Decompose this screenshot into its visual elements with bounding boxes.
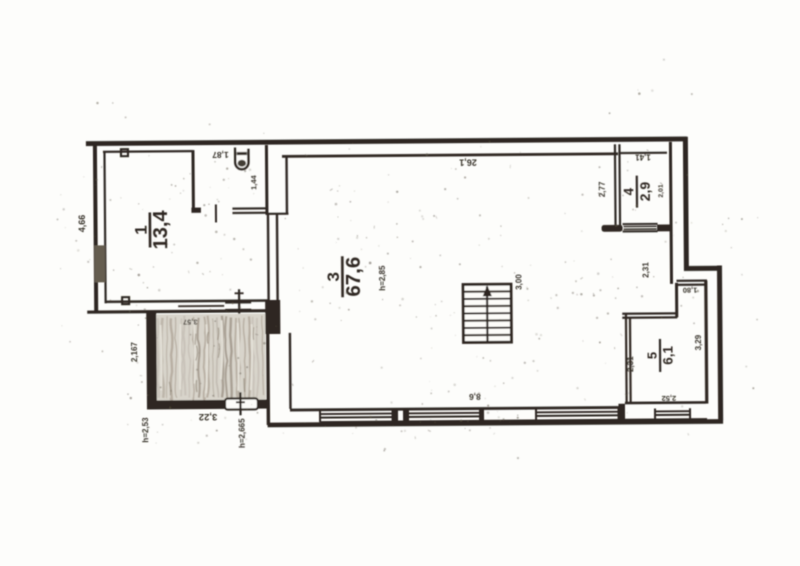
svg-text:5: 5 xyxy=(645,352,660,359)
svg-text:3,29: 3,29 xyxy=(694,334,703,350)
svg-text:2,77: 2,77 xyxy=(598,181,607,197)
svg-text:26,1: 26,1 xyxy=(459,157,477,167)
svg-text:3,00: 3,00 xyxy=(514,274,523,290)
svg-text:h=2,53: h=2,53 xyxy=(141,417,150,443)
svg-text:6,1: 6,1 xyxy=(660,345,675,364)
svg-text:2,52: 2,52 xyxy=(662,394,677,403)
svg-text:2,31: 2,31 xyxy=(626,356,635,372)
svg-text:2,167: 2,167 xyxy=(130,341,139,362)
svg-text:1,44: 1,44 xyxy=(249,174,258,189)
svg-text:1,87: 1,87 xyxy=(212,150,229,160)
svg-text:4: 4 xyxy=(621,187,636,195)
svg-text:67,6: 67,6 xyxy=(342,257,365,297)
svg-text:2,01: 2,01 xyxy=(658,184,665,198)
svg-text:3: 3 xyxy=(324,272,343,282)
svg-text:4,66: 4,66 xyxy=(77,215,87,233)
svg-text:2,31: 2,31 xyxy=(641,262,650,278)
svg-text:h=2,665: h=2,665 xyxy=(238,418,247,448)
svg-text:1,80: 1,80 xyxy=(683,286,698,295)
svg-text:1: 1 xyxy=(131,225,150,235)
svg-text:13,4: 13,4 xyxy=(150,209,172,249)
svg-text:2,9: 2,9 xyxy=(637,182,653,202)
svg-text:1,41: 1,41 xyxy=(635,153,651,162)
svg-text:3,22: 3,22 xyxy=(199,411,218,422)
svg-text:h=2,85: h=2,85 xyxy=(378,265,387,291)
svg-text:3,57: 3,57 xyxy=(183,318,198,327)
